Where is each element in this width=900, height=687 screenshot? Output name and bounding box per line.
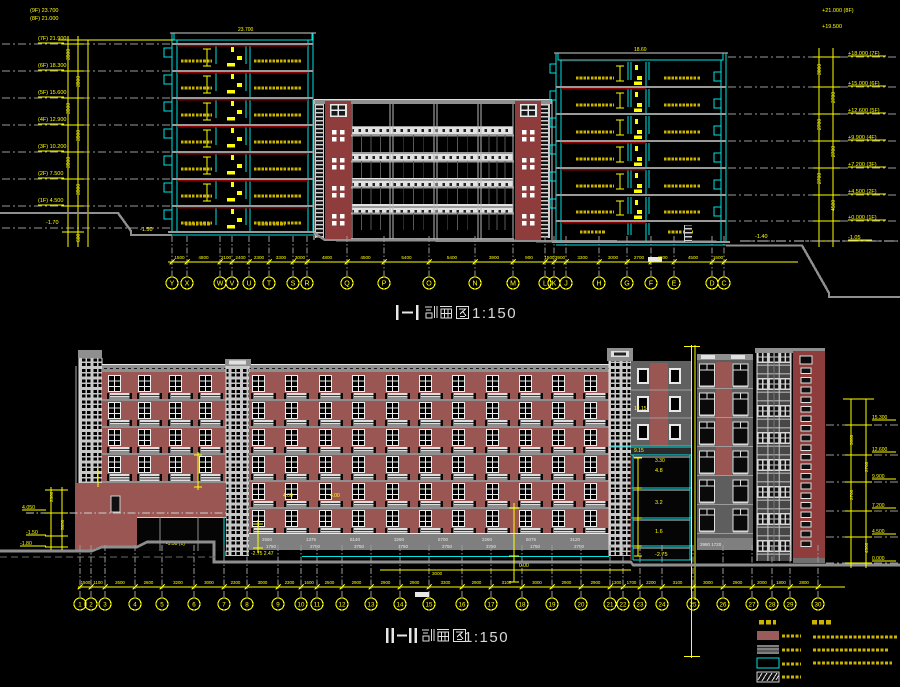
svg-text:2000: 2000 (757, 580, 767, 585)
svg-text:(1F) 4.500: (1F) 4.500 (38, 198, 63, 204)
svg-text:E: E (672, 281, 677, 288)
svg-text:17: 17 (488, 602, 495, 609)
svg-text:2750: 2750 (310, 544, 321, 549)
svg-text:0.00: 0.00 (519, 563, 529, 569)
svg-text:3000: 3000 (532, 580, 542, 585)
svg-text:5: 5 (160, 602, 164, 609)
svg-text:4500: 4500 (360, 255, 371, 260)
svg-text:3900: 3900 (66, 157, 72, 168)
svg-text:1800: 1800 (776, 580, 786, 585)
svg-text:2700: 2700 (849, 489, 854, 500)
svg-text:1750: 1750 (530, 544, 541, 549)
svg-text:2100: 2100 (221, 255, 232, 260)
svg-text:5400: 5400 (447, 255, 458, 260)
svg-text:23: 23 (637, 602, 644, 609)
svg-text:12: 12 (339, 602, 346, 609)
svg-text:2300: 2300 (285, 580, 295, 585)
svg-text:11: 11 (314, 602, 321, 609)
svg-text:7: 7 (222, 602, 226, 609)
svg-text:2500: 2500 (325, 580, 335, 585)
svg-text:3.2: 3.2 (655, 500, 663, 506)
svg-text:2750: 2750 (574, 544, 585, 549)
svg-text:5850: 5850 (60, 519, 65, 530)
svg-text:4500: 4500 (864, 542, 869, 553)
svg-text:2750: 2750 (442, 544, 453, 549)
svg-text:R: R (304, 281, 309, 288)
svg-text:S: S (291, 281, 296, 288)
svg-text:2: 2 (89, 602, 93, 609)
svg-text:L: L (543, 281, 547, 288)
svg-text:15: 15 (426, 602, 433, 609)
svg-text:3000: 3000 (849, 434, 854, 445)
svg-text:23.700: 23.700 (238, 27, 254, 33)
svg-text:4.8: 4.8 (655, 468, 663, 474)
svg-text:1500: 1500 (544, 255, 555, 260)
svg-text:(4F) 12.900: (4F) 12.900 (38, 117, 66, 123)
svg-text:2900: 2900 (472, 580, 482, 585)
svg-text:3300: 3300 (577, 255, 588, 260)
svg-text:3900: 3900 (76, 76, 82, 87)
svg-text:1: 1 (78, 602, 82, 609)
svg-text:H: H (596, 281, 601, 288)
svg-text:3260: 3260 (394, 537, 405, 542)
svg-text:1750: 1750 (398, 544, 409, 549)
svg-text:28: 28 (769, 602, 776, 609)
svg-text:2700: 2700 (864, 461, 869, 472)
svg-text:1500: 1500 (713, 255, 724, 260)
svg-text:10: 10 (298, 602, 305, 609)
svg-text:5700: 5700 (438, 537, 449, 542)
svg-text:Y: Y (170, 281, 175, 288)
svg-text:2700: 2700 (817, 173, 823, 184)
svg-text:U: U (246, 281, 251, 288)
svg-text:T: T (267, 281, 272, 288)
svg-text:3900: 3900 (489, 255, 500, 260)
svg-text:22: 22 (620, 602, 627, 609)
svg-text:3200: 3200 (173, 580, 183, 585)
svg-text:27: 27 (749, 602, 756, 609)
svg-text:2300: 2300 (49, 491, 54, 502)
svg-text:3000: 3000 (295, 255, 306, 260)
svg-text:1100: 1100 (93, 580, 103, 585)
svg-text:F: F (649, 281, 653, 288)
svg-text:4: 4 (133, 602, 137, 609)
svg-text:2900: 2900 (733, 580, 743, 585)
svg-text:4.00: 4.00 (330, 493, 340, 499)
svg-text:8: 8 (245, 602, 249, 609)
svg-text:20: 20 (578, 602, 585, 609)
svg-text:-1.40: -1.40 (755, 234, 768, 240)
svg-text:3900: 3900 (66, 103, 72, 114)
svg-text:3.30: 3.30 (655, 458, 665, 464)
svg-text:3100: 3100 (502, 580, 512, 585)
svg-text:N: N (472, 281, 477, 288)
svg-text:3900: 3900 (66, 49, 72, 60)
svg-text:(9F) 23.700: (9F) 23.700 (30, 8, 58, 14)
svg-text:2900: 2900 (352, 580, 362, 585)
svg-text:J: J (564, 281, 568, 288)
svg-text:5140: 5140 (350, 537, 361, 542)
svg-text:-1.70: -1.70 (46, 220, 59, 226)
svg-text:1:150: 1:150 (464, 629, 509, 646)
svg-text:21: 21 (607, 602, 614, 609)
svg-text:18.60: 18.60 (634, 47, 647, 53)
svg-text:2900: 2900 (591, 580, 601, 585)
svg-text:3900: 3900 (555, 255, 566, 260)
svg-text:6: 6 (192, 602, 196, 609)
svg-text:2900: 2900 (562, 580, 572, 585)
svg-text:2700: 2700 (817, 119, 823, 130)
svg-text:1:150: 1:150 (472, 305, 517, 322)
svg-text:1700: 1700 (627, 580, 637, 585)
svg-text:2900: 2900 (381, 580, 391, 585)
svg-text:M: M (510, 281, 516, 288)
svg-text:W: W (217, 281, 224, 288)
svg-text:-2.75 2.47: -2.75 2.47 (251, 551, 274, 557)
svg-text:900: 900 (525, 255, 533, 260)
svg-text:18: 18 (519, 602, 526, 609)
svg-text:24: 24 (659, 602, 666, 609)
svg-text:25: 25 (690, 602, 697, 609)
svg-text:3900: 3900 (76, 184, 82, 195)
svg-text:2700: 2700 (634, 255, 645, 260)
svg-text:1300: 1300 (612, 580, 622, 585)
svg-text:D: D (709, 281, 714, 288)
svg-text:1500: 1500 (174, 255, 185, 260)
svg-text:+21.000 (8F): +21.000 (8F) (822, 8, 854, 14)
svg-text:1500: 1500 (81, 580, 91, 585)
svg-text:(6F) 18.300: (6F) 18.300 (38, 63, 66, 69)
svg-text:1600: 1600 (304, 580, 314, 585)
svg-text:4800: 4800 (657, 255, 668, 260)
svg-text:9.15: 9.15 (634, 448, 644, 454)
svg-text:2560: 2560 (262, 537, 273, 542)
svg-text:2800: 2800 (799, 580, 809, 585)
svg-text:3750: 3750 (354, 544, 365, 549)
svg-text:1375: 1375 (306, 537, 317, 542)
svg-text:2200: 2200 (646, 580, 656, 585)
svg-text:1.6: 1.6 (655, 529, 663, 535)
svg-text:4500: 4500 (688, 255, 699, 260)
svg-text:G: G (624, 281, 629, 288)
svg-text:600: 600 (76, 233, 82, 242)
svg-text:5400: 5400 (401, 255, 412, 260)
svg-text:+19.500: +19.500 (822, 24, 842, 30)
svg-text:26: 26 (720, 602, 727, 609)
svg-text:Q: Q (344, 281, 350, 288)
svg-text:4.00: 4.00 (283, 493, 293, 499)
svg-text:3: 3 (103, 602, 107, 609)
svg-text:(5F) 15.600: (5F) 15.600 (38, 90, 66, 96)
svg-text:2300: 2300 (254, 255, 265, 260)
svg-text:5075: 5075 (526, 537, 537, 542)
svg-text:3000: 3000 (258, 580, 268, 585)
svg-text:19: 19 (549, 602, 556, 609)
svg-text:2700: 2700 (831, 146, 837, 157)
svg-text:12.15: 12.15 (634, 406, 647, 412)
svg-text:K: K (552, 281, 557, 288)
svg-text:3300: 3300 (276, 255, 287, 260)
svg-text:C: C (721, 281, 726, 288)
svg-text:2260: 2260 (482, 537, 493, 542)
svg-text:(8F) 21.000: (8F) 21.000 (30, 16, 58, 22)
svg-text:3120: 3120 (570, 537, 581, 542)
svg-text:2700: 2700 (831, 92, 837, 103)
svg-text:O: O (426, 281, 432, 288)
svg-text:3100: 3100 (673, 580, 683, 585)
svg-text:30: 30 (815, 602, 822, 609)
svg-text:4800: 4800 (198, 255, 209, 260)
svg-text:3000: 3000 (703, 580, 713, 585)
svg-text:1750: 1750 (266, 544, 277, 549)
svg-text:29: 29 (787, 602, 794, 609)
svg-text:X: X (185, 281, 190, 288)
svg-text:3000: 3000 (608, 255, 619, 260)
svg-text:V: V (230, 281, 235, 288)
svg-text:2600: 2600 (144, 580, 154, 585)
svg-text:(2F) 7.500: (2F) 7.500 (38, 171, 63, 177)
svg-text:-1.50: -1.50 (140, 227, 153, 233)
svg-text:3000: 3000 (817, 64, 823, 75)
svg-text:3000: 3000 (204, 580, 214, 585)
svg-text:3900: 3900 (76, 130, 82, 141)
svg-text:-2.75: -2.75 (655, 552, 668, 558)
svg-text:3980 1720: 3980 1720 (700, 542, 722, 547)
svg-text:2600: 2600 (115, 580, 125, 585)
svg-text:P: P (382, 281, 387, 288)
svg-text:13: 13 (368, 602, 375, 609)
svg-text:4500: 4500 (831, 200, 837, 211)
svg-text:3300: 3300 (441, 580, 451, 585)
svg-text:(3F) 10.200: (3F) 10.200 (38, 144, 66, 150)
svg-text:9: 9 (276, 602, 280, 609)
svg-text:4800: 4800 (322, 255, 333, 260)
svg-text:16: 16 (459, 602, 466, 609)
svg-text:3000: 3000 (432, 571, 443, 576)
svg-text:2300: 2300 (231, 580, 241, 585)
svg-text:2400: 2400 (235, 255, 246, 260)
svg-text:2900: 2900 (410, 580, 420, 585)
svg-text:14: 14 (397, 602, 404, 609)
svg-text:(7F) 21.900: (7F) 21.900 (38, 36, 66, 42)
